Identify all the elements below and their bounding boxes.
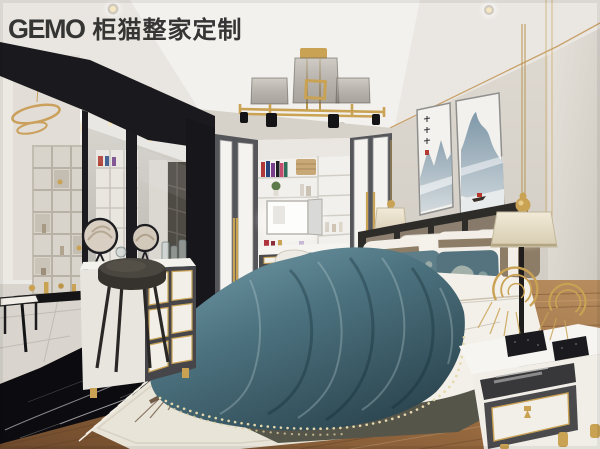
bedroom-rendering: GEMO 柜猫整家定制 (0, 0, 600, 449)
art-panel-right (456, 93, 504, 221)
perfume-bottles (325, 222, 329, 232)
dresser (80, 219, 196, 398)
vanity-mirror (258, 198, 326, 242)
brand-watermark: GEMO 柜猫整家定制 (8, 10, 243, 45)
wall-art-ink-landscape (417, 93, 504, 221)
art-panel-left (417, 103, 453, 215)
lamp-stem (519, 247, 524, 335)
scene-canvas (0, 0, 600, 449)
brand-name-chinese: 柜猫整家定制 (93, 10, 243, 45)
brand-logo-text: GEMO (8, 14, 85, 45)
shelf-basket (296, 159, 316, 175)
